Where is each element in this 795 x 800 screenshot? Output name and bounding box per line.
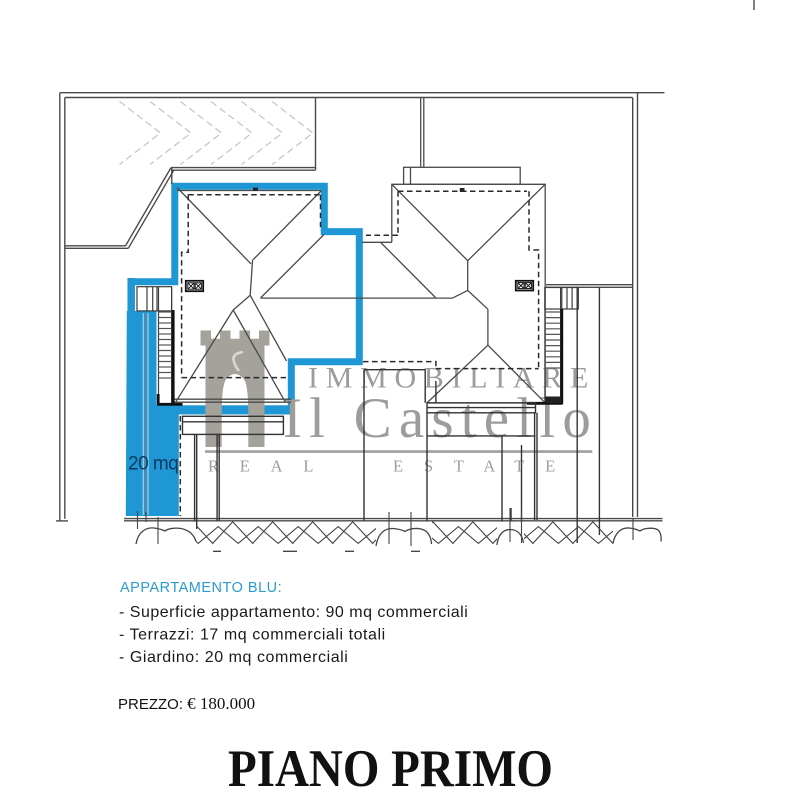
svg-text:Il Castello: Il Castello (283, 387, 598, 450)
svg-text:- Terrazzi: 17 mq commerciali: - Terrazzi: 17 mq commerciali totali (119, 627, 386, 644)
svg-text:- Superficie appartamento: 90: - Superficie appartamento: 90 mq commerc… (119, 604, 468, 621)
svg-text:REAL: REAL (208, 457, 334, 476)
svg-text:PREZZO: € 180.000: PREZZO: € 180.000 (118, 694, 255, 713)
svg-text:PIANO PRIMO: PIANO PRIMO (228, 740, 553, 798)
svg-text:20 mq: 20 mq (128, 454, 178, 475)
svg-text:- Giardino: 20 mq commerciali: - Giardino: 20 mq commerciali (119, 649, 348, 666)
svg-text:ESTATE: ESTATE (393, 457, 576, 476)
svg-text:APPARTAMENTO BLU:: APPARTAMENTO BLU: (120, 580, 282, 596)
